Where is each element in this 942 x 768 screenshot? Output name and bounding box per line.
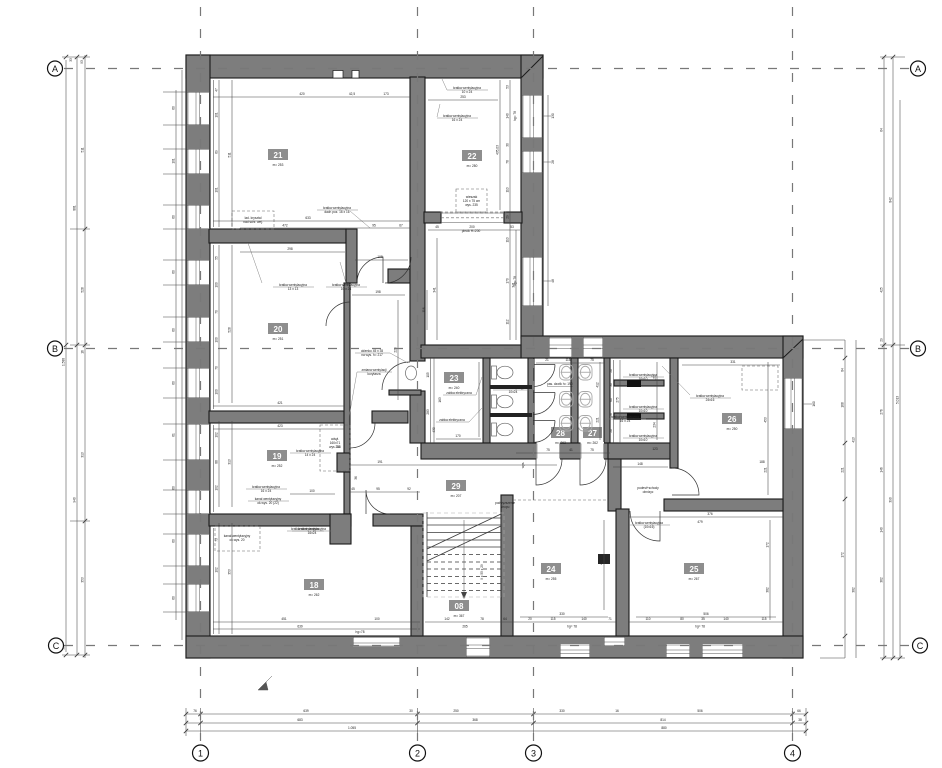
svg-text:331: 331 bbox=[730, 360, 736, 364]
svg-text:115: 115 bbox=[761, 617, 766, 621]
svg-text:61: 61 bbox=[172, 433, 176, 437]
svg-text:(10x16): (10x16) bbox=[644, 525, 655, 529]
svg-text:50: 50 bbox=[609, 369, 613, 373]
svg-text:16 x 24: 16 x 24 bbox=[452, 118, 463, 122]
svg-text:60: 60 bbox=[172, 381, 176, 385]
svg-text:66: 66 bbox=[797, 709, 801, 713]
svg-text:73: 73 bbox=[215, 538, 219, 542]
svg-text:172: 172 bbox=[766, 542, 770, 548]
svg-text:313: 313 bbox=[228, 459, 232, 465]
svg-text:hg= 78: hg= 78 bbox=[695, 625, 705, 629]
svg-text:38: 38 bbox=[798, 718, 802, 722]
svg-text:60: 60 bbox=[172, 328, 176, 332]
svg-text:m= 251: m= 251 bbox=[273, 337, 284, 341]
svg-text:170: 170 bbox=[506, 278, 510, 284]
svg-text:78: 78 bbox=[506, 160, 510, 164]
svg-text:42,5: 42,5 bbox=[349, 92, 355, 96]
svg-text:112: 112 bbox=[506, 319, 510, 324]
svg-text:188: 188 bbox=[759, 460, 765, 464]
svg-text:1.055: 1.055 bbox=[348, 726, 356, 730]
svg-text:168: 168 bbox=[841, 402, 845, 408]
svg-text:84: 84 bbox=[841, 368, 845, 372]
svg-text:140: 140 bbox=[581, 617, 587, 621]
svg-text:76: 76 bbox=[193, 709, 197, 713]
svg-text:na wys. h= 217: na wys. h= 217 bbox=[361, 353, 383, 357]
svg-text:stropu: stropu bbox=[501, 505, 510, 509]
svg-text:22: 22 bbox=[468, 152, 477, 161]
svg-text:m= 367: m= 367 bbox=[454, 614, 465, 618]
svg-text:115: 115 bbox=[550, 617, 555, 621]
svg-text:24x16: 24x16 bbox=[706, 398, 715, 402]
svg-text:940: 940 bbox=[73, 497, 77, 503]
svg-text:60: 60 bbox=[172, 539, 176, 543]
svg-text:24: 24 bbox=[547, 565, 556, 574]
svg-text:hg= 78: hg= 78 bbox=[567, 625, 577, 629]
svg-text:14 x 24: 14 x 24 bbox=[305, 453, 316, 457]
svg-text:421: 421 bbox=[277, 401, 283, 405]
svg-text:64: 64 bbox=[880, 128, 884, 132]
svg-text:m= 262: m= 262 bbox=[587, 441, 598, 445]
svg-text:451: 451 bbox=[281, 617, 287, 621]
svg-text:253: 253 bbox=[460, 95, 466, 99]
svg-text:m= 262: m= 262 bbox=[309, 593, 320, 597]
svg-text:221: 221 bbox=[841, 467, 845, 473]
svg-text:88: 88 bbox=[215, 460, 219, 464]
svg-text:95: 95 bbox=[376, 487, 380, 491]
svg-text:146: 146 bbox=[880, 467, 884, 473]
svg-text:10x10: 10x10 bbox=[639, 438, 648, 442]
svg-text:m= 240: m= 240 bbox=[449, 386, 460, 390]
svg-text:30: 30 bbox=[506, 143, 510, 147]
svg-text:m= 262: m= 262 bbox=[555, 441, 566, 445]
svg-text:140: 140 bbox=[880, 527, 884, 533]
svg-text:18: 18 bbox=[310, 581, 319, 590]
svg-text:71: 71 bbox=[608, 617, 612, 621]
svg-text:814: 814 bbox=[660, 718, 666, 722]
svg-text:obnizyc: obnizyc bbox=[643, 490, 654, 494]
svg-text:110: 110 bbox=[506, 187, 510, 192]
svg-text:10 x 24: 10 x 24 bbox=[462, 90, 473, 94]
svg-text:842: 842 bbox=[889, 197, 893, 203]
svg-text:4: 4 bbox=[790, 748, 795, 758]
svg-text:221: 221 bbox=[764, 467, 768, 473]
svg-text:78: 78 bbox=[480, 617, 484, 621]
svg-text:64: 64 bbox=[503, 617, 507, 621]
svg-text:122: 122 bbox=[653, 375, 657, 381]
svg-text:425: 425 bbox=[880, 287, 884, 293]
svg-text:m= 207: m= 207 bbox=[451, 494, 462, 498]
svg-text:76: 76 bbox=[609, 413, 613, 417]
svg-text:29: 29 bbox=[880, 338, 884, 342]
svg-text:100: 100 bbox=[309, 489, 315, 493]
svg-text:16 x 24: 16 x 24 bbox=[620, 419, 631, 423]
svg-text:423: 423 bbox=[277, 424, 283, 428]
svg-text:511: 511 bbox=[81, 147, 85, 152]
svg-text:123: 123 bbox=[652, 447, 658, 451]
svg-text:m= 250: m= 250 bbox=[727, 427, 738, 431]
svg-text:265: 265 bbox=[462, 625, 468, 629]
svg-text:16: 16 bbox=[615, 709, 619, 713]
svg-text:221: 221 bbox=[596, 417, 600, 423]
svg-text:29: 29 bbox=[452, 482, 461, 491]
svg-text:16 x 24: 16 x 24 bbox=[341, 287, 352, 291]
svg-text:639: 639 bbox=[303, 709, 309, 713]
svg-text:80: 80 bbox=[680, 617, 684, 621]
svg-text:115: 115 bbox=[565, 358, 570, 362]
svg-text:60: 60 bbox=[609, 398, 613, 402]
svg-text:m= 280: m= 280 bbox=[467, 164, 478, 168]
svg-text:330: 330 bbox=[559, 709, 565, 713]
svg-text:341: 341 bbox=[512, 282, 516, 288]
svg-text:33: 33 bbox=[69, 58, 73, 62]
svg-text:41: 41 bbox=[569, 448, 573, 452]
svg-text:110: 110 bbox=[506, 237, 510, 242]
svg-text:ok.wys. 20 (22): ok.wys. 20 (22) bbox=[257, 501, 279, 505]
svg-text:pas. dzwlk h= 190: pas. dzwlk h= 190 bbox=[547, 382, 573, 386]
svg-text:60: 60 bbox=[172, 486, 176, 490]
svg-text:nad schr. wej.: nad schr. wej. bbox=[243, 220, 263, 224]
svg-text:298: 298 bbox=[287, 247, 293, 251]
svg-text:25: 25 bbox=[690, 565, 699, 574]
svg-text:170: 170 bbox=[455, 434, 461, 438]
svg-text:430: 430 bbox=[432, 427, 436, 433]
svg-text:130: 130 bbox=[551, 113, 555, 119]
svg-text:234: 234 bbox=[653, 422, 657, 428]
svg-text:276: 276 bbox=[880, 409, 884, 415]
svg-text:53: 53 bbox=[510, 225, 514, 229]
svg-text:101: 101 bbox=[215, 187, 219, 193]
svg-text:105: 105 bbox=[426, 372, 430, 378]
svg-text:412: 412 bbox=[596, 382, 600, 388]
svg-text:93: 93 bbox=[80, 60, 84, 64]
svg-text:368: 368 bbox=[472, 718, 478, 722]
svg-text:2: 2 bbox=[415, 748, 420, 758]
svg-text:172: 172 bbox=[841, 552, 845, 558]
svg-text:75: 75 bbox=[590, 448, 594, 452]
svg-text:hg=78: hg=78 bbox=[356, 630, 365, 634]
svg-text:70: 70 bbox=[215, 366, 219, 370]
svg-text:479: 479 bbox=[697, 520, 703, 524]
svg-text:28: 28 bbox=[551, 160, 555, 164]
svg-text:48: 48 bbox=[551, 279, 555, 283]
svg-text:100: 100 bbox=[215, 389, 219, 395]
svg-text:100: 100 bbox=[215, 282, 219, 288]
svg-text:zabka elektryczna: zabka elektryczna bbox=[439, 418, 465, 422]
svg-text:67: 67 bbox=[399, 224, 403, 228]
svg-text:376: 376 bbox=[707, 512, 713, 516]
svg-text:275: 275 bbox=[616, 397, 620, 403]
svg-text:35: 35 bbox=[701, 617, 705, 621]
svg-text:506: 506 bbox=[703, 612, 709, 616]
svg-text:60: 60 bbox=[172, 270, 176, 274]
svg-text:472: 472 bbox=[282, 224, 288, 228]
svg-text:dach poz. 16 x 16: dach poz. 16 x 16 bbox=[324, 210, 349, 214]
svg-text:250: 250 bbox=[453, 709, 459, 713]
svg-text:21: 21 bbox=[545, 358, 549, 362]
svg-text:435,03: 435,03 bbox=[496, 145, 500, 155]
svg-text:28: 28 bbox=[556, 429, 565, 438]
svg-text:55: 55 bbox=[215, 256, 219, 260]
svg-text:16x24: 16x24 bbox=[308, 531, 317, 535]
svg-text:m= 252: m= 252 bbox=[272, 464, 283, 468]
svg-text:60: 60 bbox=[172, 215, 176, 219]
svg-text:23: 23 bbox=[450, 374, 459, 383]
svg-text:19: 19 bbox=[273, 452, 282, 461]
svg-text:116: 116 bbox=[422, 307, 426, 312]
svg-text:92: 92 bbox=[407, 487, 411, 491]
svg-text:9 x 55 x 29: 9 x 55 x 29 bbox=[480, 564, 484, 580]
svg-text:353: 353 bbox=[81, 577, 85, 583]
svg-text:639: 639 bbox=[297, 625, 303, 629]
svg-text:683: 683 bbox=[297, 718, 303, 722]
svg-text:69: 69 bbox=[215, 150, 219, 154]
svg-text:160: 160 bbox=[812, 401, 816, 407]
svg-text:313: 313 bbox=[81, 452, 85, 458]
svg-text:30: 30 bbox=[409, 709, 413, 713]
svg-text:3: 3 bbox=[531, 748, 536, 758]
svg-text:413: 413 bbox=[852, 437, 856, 443]
svg-text:B: B bbox=[915, 344, 921, 354]
svg-text:zabka elektryczna: zabka elektryczna bbox=[446, 391, 472, 395]
svg-text:102: 102 bbox=[215, 567, 219, 573]
svg-text:881: 881 bbox=[73, 205, 77, 211]
svg-text:13 x 13: 13 x 13 bbox=[288, 287, 299, 291]
svg-text:880: 880 bbox=[661, 726, 667, 730]
svg-text:102: 102 bbox=[215, 432, 219, 438]
svg-text:53: 53 bbox=[506, 85, 510, 89]
svg-text:47: 47 bbox=[215, 88, 219, 92]
svg-text:528: 528 bbox=[228, 327, 232, 333]
svg-text:plecik H=200: plecik H=200 bbox=[462, 229, 481, 233]
svg-text:108: 108 bbox=[377, 255, 383, 259]
svg-text:korytarza: korytarza bbox=[367, 372, 380, 376]
svg-text:C: C bbox=[53, 641, 60, 651]
svg-text:148: 148 bbox=[637, 462, 643, 466]
svg-text:95: 95 bbox=[372, 224, 376, 228]
svg-text:200: 200 bbox=[469, 225, 475, 229]
svg-text:60: 60 bbox=[172, 596, 176, 600]
svg-text:10x10: 10x10 bbox=[639, 377, 648, 381]
svg-text:10x24: 10x24 bbox=[509, 390, 518, 394]
svg-text:50: 50 bbox=[609, 429, 613, 433]
svg-text:5.013: 5.013 bbox=[896, 396, 900, 404]
svg-text:hg= 78: hg= 78 bbox=[513, 111, 517, 121]
svg-text:163: 163 bbox=[438, 397, 442, 403]
svg-text:C: C bbox=[917, 641, 924, 651]
svg-text:wys.: wys. bbox=[521, 462, 525, 468]
svg-text:353: 353 bbox=[228, 569, 232, 575]
svg-text:1: 1 bbox=[198, 748, 203, 758]
svg-text:B: B bbox=[52, 344, 58, 354]
svg-text:283: 283 bbox=[426, 409, 430, 415]
svg-text:A: A bbox=[915, 64, 921, 74]
svg-text:A: A bbox=[52, 64, 58, 74]
svg-text:34: 34 bbox=[336, 445, 340, 449]
svg-text:382: 382 bbox=[852, 587, 856, 593]
svg-text:75: 75 bbox=[590, 358, 594, 362]
svg-text:36: 36 bbox=[354, 476, 358, 480]
svg-text:m= 255: m= 255 bbox=[546, 577, 557, 581]
svg-text:101: 101 bbox=[215, 112, 219, 118]
svg-text:102: 102 bbox=[215, 485, 219, 491]
svg-text:198: 198 bbox=[375, 290, 381, 294]
svg-text:173: 173 bbox=[383, 92, 389, 96]
svg-text:08: 08 bbox=[455, 602, 464, 611]
svg-text:75: 75 bbox=[546, 448, 550, 452]
svg-text:140: 140 bbox=[723, 617, 729, 621]
svg-text:420: 420 bbox=[299, 92, 305, 96]
svg-text:511: 511 bbox=[228, 152, 232, 157]
svg-text:633: 633 bbox=[305, 216, 311, 220]
svg-text:20: 20 bbox=[528, 617, 532, 621]
svg-text:528: 528 bbox=[81, 287, 85, 293]
svg-text:140: 140 bbox=[506, 113, 510, 119]
svg-text:20: 20 bbox=[274, 325, 283, 334]
svg-text:506: 506 bbox=[697, 709, 703, 713]
svg-text:16 x 24: 16 x 24 bbox=[261, 489, 272, 493]
svg-text:362: 362 bbox=[880, 577, 884, 583]
svg-text:101: 101 bbox=[172, 158, 176, 164]
svg-text:60: 60 bbox=[172, 106, 176, 110]
svg-text:m= 267: m= 267 bbox=[689, 577, 700, 581]
svg-text:26: 26 bbox=[728, 415, 737, 424]
svg-text:423,03: 423,03 bbox=[600, 555, 604, 565]
svg-text:382: 382 bbox=[766, 587, 770, 593]
svg-text:10x10: 10x10 bbox=[639, 409, 648, 413]
svg-text:100: 100 bbox=[215, 337, 219, 343]
svg-text:110: 110 bbox=[645, 617, 650, 621]
svg-text:16: 16 bbox=[81, 350, 85, 354]
svg-text:341: 341 bbox=[433, 287, 437, 293]
svg-text:100: 100 bbox=[374, 617, 380, 621]
svg-text:1.588: 1.588 bbox=[62, 358, 66, 366]
svg-text:21: 21 bbox=[274, 151, 283, 160]
svg-text:70: 70 bbox=[215, 310, 219, 314]
svg-text:142: 142 bbox=[444, 617, 450, 621]
svg-text:29: 29 bbox=[506, 215, 510, 219]
svg-text:330: 330 bbox=[559, 612, 565, 616]
svg-text:453: 453 bbox=[764, 417, 768, 423]
svg-text:kratka wentylacyjna: kratka wentylacyjna bbox=[291, 527, 319, 531]
svg-text:191: 191 bbox=[377, 460, 383, 464]
svg-text:45: 45 bbox=[435, 225, 439, 229]
svg-text:45: 45 bbox=[351, 487, 355, 491]
svg-text:wys. 235: wys. 235 bbox=[465, 203, 478, 207]
svg-text:390: 390 bbox=[889, 497, 893, 503]
svg-text:30: 30 bbox=[609, 383, 613, 387]
svg-text:m= 253: m= 253 bbox=[273, 163, 284, 167]
